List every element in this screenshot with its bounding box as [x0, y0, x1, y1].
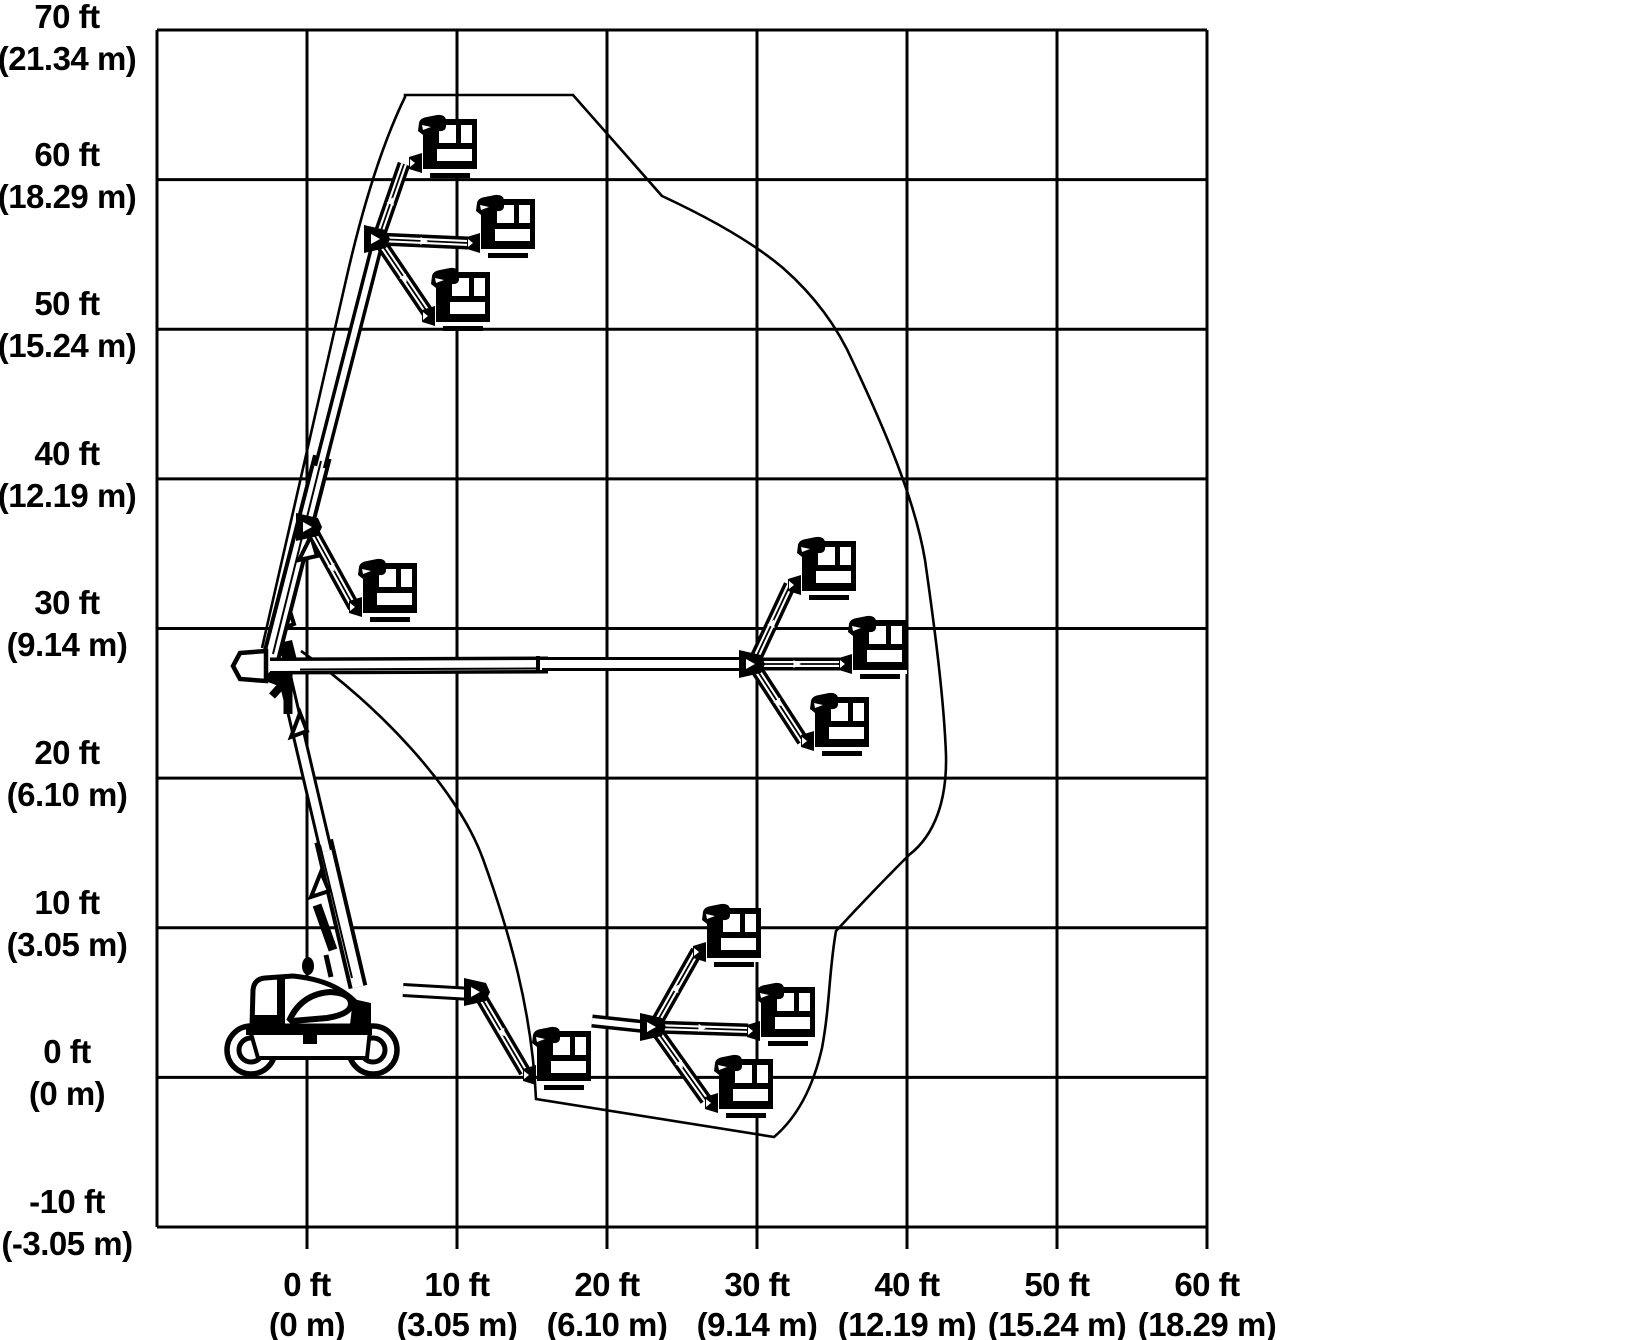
- svg-text:(15.24 m): (15.24 m): [0, 327, 136, 364]
- svg-text:30 ft: 30 ft: [34, 584, 100, 621]
- svg-text:(0 m): (0 m): [29, 1075, 105, 1112]
- svg-text:40 ft: 40 ft: [874, 1266, 940, 1303]
- svg-text:50 ft: 50 ft: [1024, 1266, 1090, 1303]
- svg-text:(6.10 m): (6.10 m): [7, 776, 128, 813]
- svg-text:(-3.05 m): (-3.05 m): [1, 1225, 132, 1262]
- svg-text:10 ft: 10 ft: [34, 884, 100, 921]
- svg-text:(9.14 m): (9.14 m): [7, 626, 128, 663]
- svg-text:(9.14 m): (9.14 m): [697, 1306, 818, 1340]
- svg-text:70 ft: 70 ft: [34, 0, 100, 35]
- svg-text:20 ft: 20 ft: [574, 1266, 640, 1303]
- svg-text:10 ft: 10 ft: [424, 1266, 490, 1303]
- svg-text:0 ft: 0 ft: [283, 1266, 331, 1303]
- svg-text:30 ft: 30 ft: [724, 1266, 790, 1303]
- svg-text:(6.10 m): (6.10 m): [547, 1306, 668, 1340]
- svg-text:(21.34 m): (21.34 m): [0, 40, 136, 77]
- svg-text:20 ft: 20 ft: [34, 734, 100, 771]
- svg-text:(18.29 m): (18.29 m): [0, 178, 136, 215]
- svg-text:40 ft: 40 ft: [34, 435, 100, 472]
- svg-text:-10 ft: -10 ft: [29, 1183, 105, 1220]
- svg-text:(15.24 m): (15.24 m): [988, 1306, 1127, 1340]
- svg-text:0 ft: 0 ft: [43, 1033, 91, 1070]
- svg-text:(0 m): (0 m): [269, 1306, 345, 1340]
- svg-text:60 ft: 60 ft: [1174, 1266, 1240, 1303]
- svg-text:(12.19 m): (12.19 m): [0, 477, 136, 514]
- svg-text:(18.29 m): (18.29 m): [1138, 1306, 1277, 1340]
- svg-text:(3.05 m): (3.05 m): [7, 926, 128, 963]
- svg-text:(12.19 m): (12.19 m): [838, 1306, 977, 1340]
- svg-text:60 ft: 60 ft: [34, 136, 100, 173]
- svg-text:(3.05 m): (3.05 m): [397, 1306, 518, 1340]
- svg-text:50 ft: 50 ft: [34, 285, 100, 322]
